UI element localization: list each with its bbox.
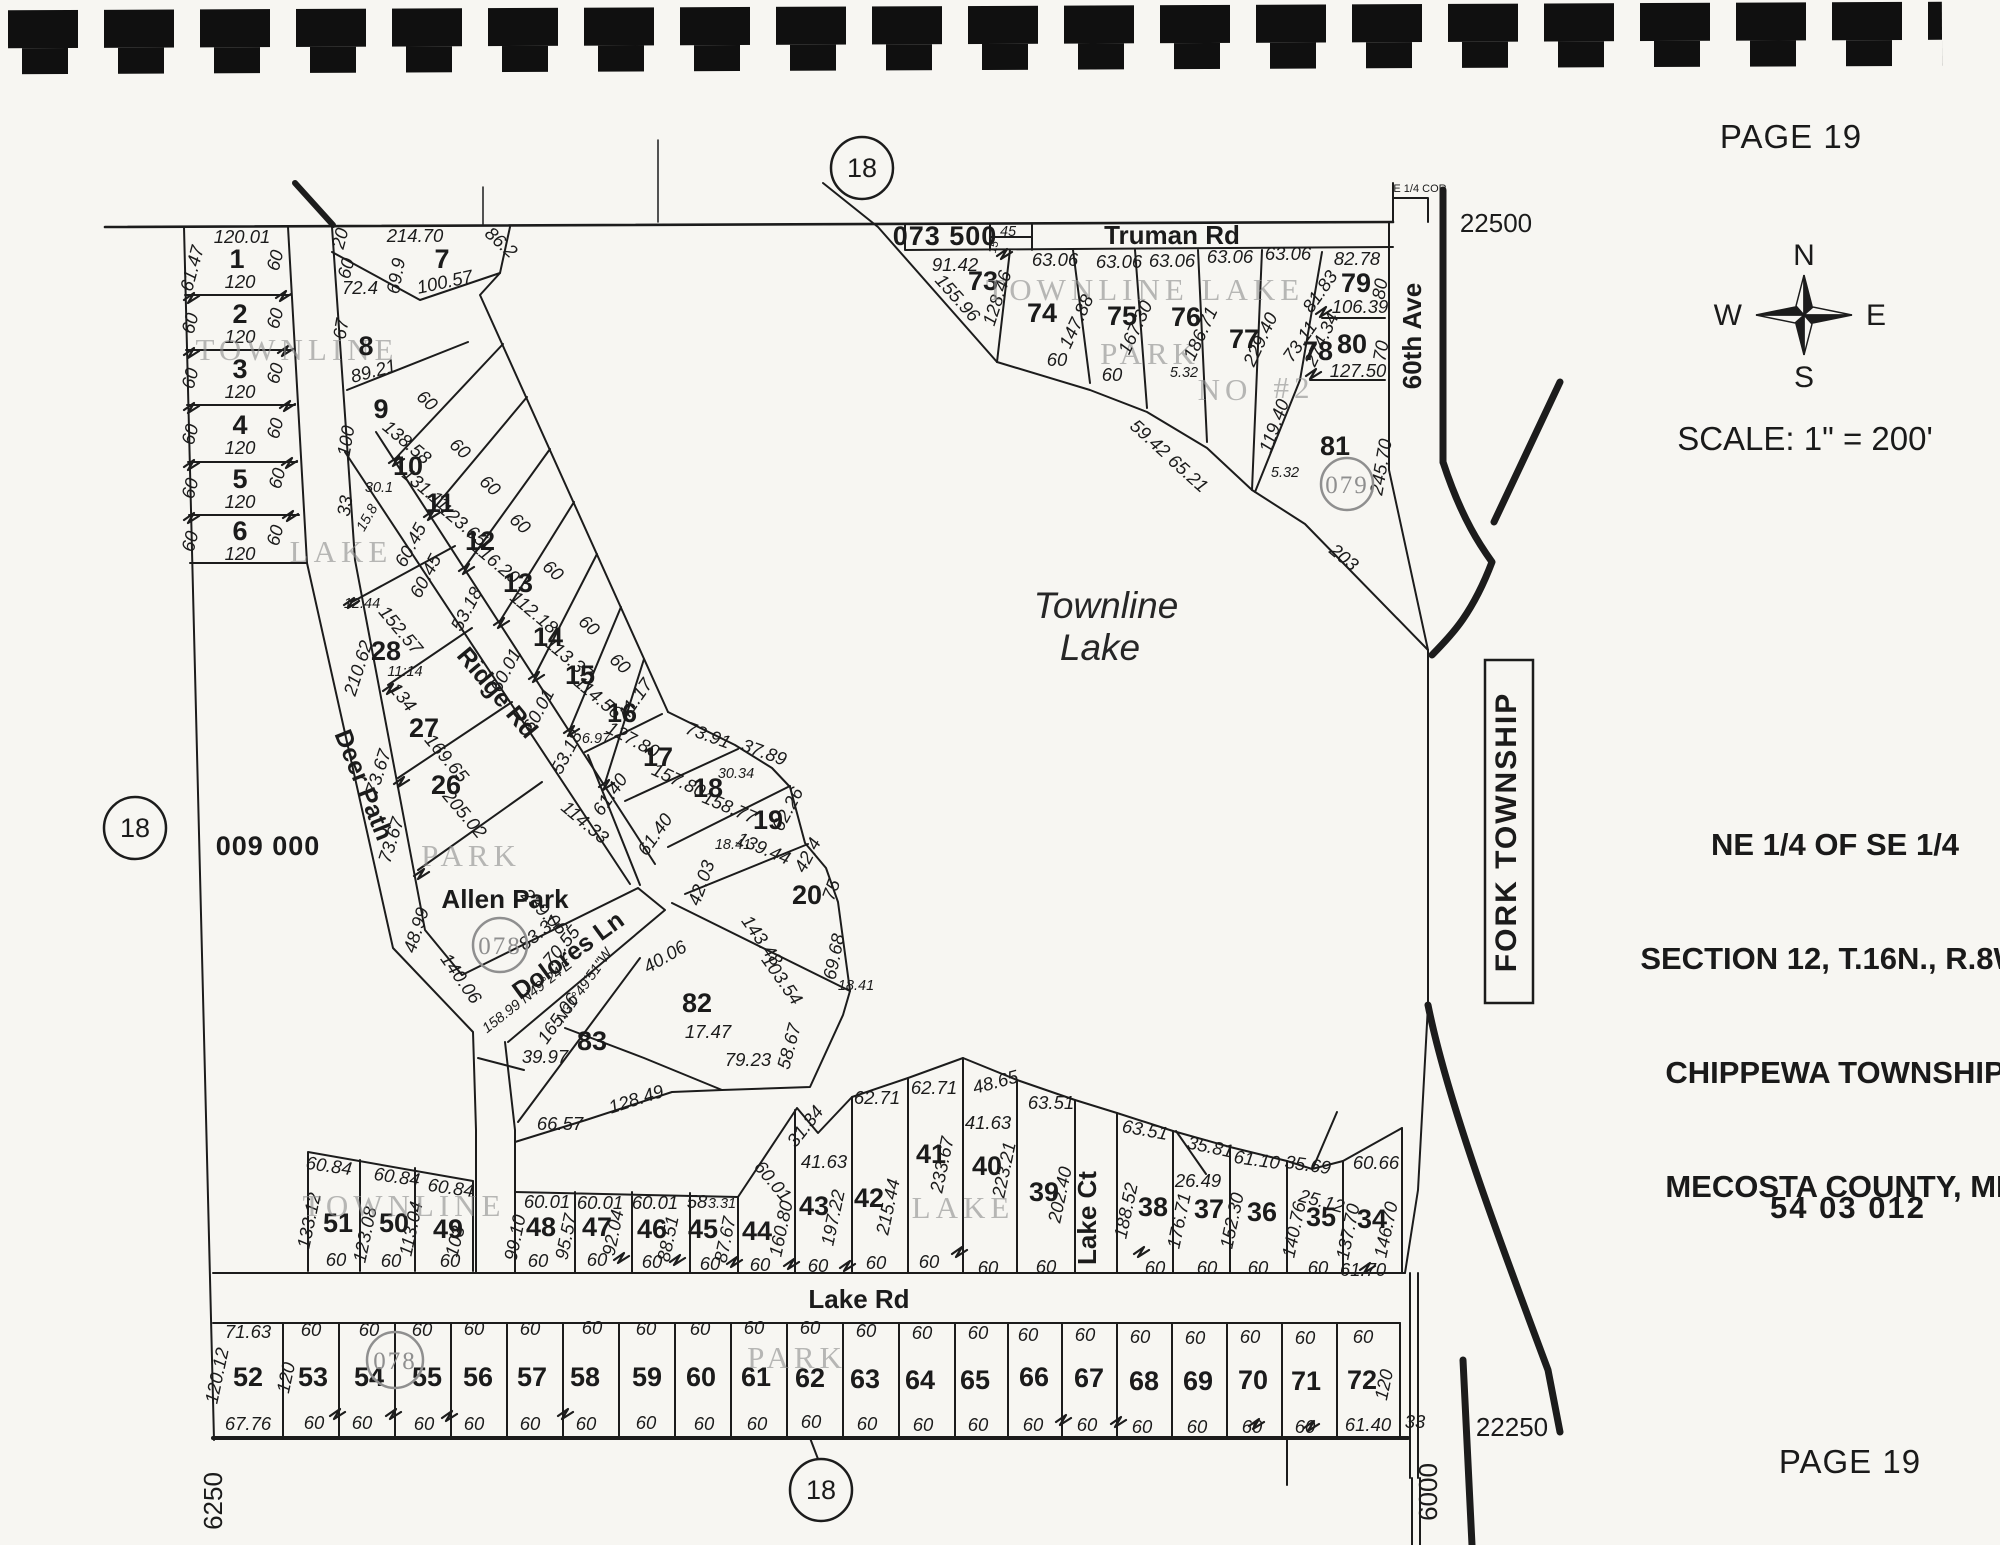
corner-note: 15 — [987, 240, 1002, 255]
dimension-label: 60.84 — [305, 1152, 354, 1179]
dimension-label: 120 — [225, 543, 257, 564]
compass-e: E — [1866, 299, 1886, 332]
dimension-label: 61.40 — [633, 809, 677, 860]
dimension-label: 60 — [575, 610, 605, 640]
dimension-label: 67.76 — [225, 1413, 272, 1434]
circle-number: 18 — [120, 813, 150, 843]
dimension-label: 61.40 — [588, 769, 632, 820]
dimension-label: 60 — [1102, 364, 1123, 385]
dimension-label: 60 — [352, 1412, 373, 1433]
watermark-text: NO — [1198, 372, 1253, 407]
dimension-label: 61.70 — [1340, 1259, 1387, 1280]
lot-number: 80 — [1337, 329, 1367, 359]
dimension-label: 60 — [359, 1319, 380, 1340]
parcel-id-label: 54 03 012 — [1718, 1190, 1978, 1226]
dimension-label: 60 — [1187, 1416, 1208, 1437]
dimension-label: 60 — [1130, 1326, 1151, 1347]
dimension-label: 66.57 — [537, 1113, 584, 1134]
dimension-label: 158.77 — [699, 786, 760, 828]
dimension-label: 30.1 — [365, 480, 393, 496]
dimension-label: 60 — [440, 1250, 461, 1271]
dimension-label: 60 — [690, 1318, 711, 1339]
dimension-label: 60 — [1248, 1257, 1269, 1278]
dimension-label: 18.41 — [715, 837, 751, 853]
legal-line-1: NE 1/4 OF SE 1/4 — [1575, 826, 2000, 864]
lot-number: 68 — [1129, 1366, 1159, 1396]
dimension-label: 60 — [1185, 1327, 1206, 1348]
dimension-label: 35.69 — [1284, 1151, 1333, 1178]
page-number-top: PAGE 19 — [1671, 118, 1911, 156]
legal-line-3: CHIPPEWA TOWNSHIP — [1575, 1054, 2000, 1092]
dimension-label: 60 — [636, 1318, 657, 1339]
dimension-label: 60 — [636, 1412, 657, 1433]
lot-number: 79 — [1341, 268, 1371, 298]
lot-number: 59 — [632, 1362, 662, 1392]
circle-number: 079 — [1325, 472, 1369, 499]
dimension-label: 210.62 — [339, 637, 377, 699]
dimension-label: 73.91 — [683, 717, 734, 753]
dimension-label: 120 — [272, 1360, 299, 1395]
dimension-label: 60 — [177, 475, 203, 501]
grid-coordinate-label: 22500 — [1460, 208, 1532, 238]
circle-number: 18 — [806, 1475, 836, 1505]
dimension-label: 63.06 — [1149, 250, 1196, 271]
lot-number: 6 — [232, 516, 247, 546]
lot-number: 63 — [850, 1364, 880, 1394]
compass-s: S — [1794, 361, 1814, 394]
dimension-label: 120 — [225, 381, 257, 402]
dimension-label: 60 — [1308, 1257, 1329, 1278]
grid-coordinate-label: 6000 — [1413, 1463, 1443, 1521]
watermark-text: LAKE — [912, 1190, 1015, 1225]
dimension-label: 60 — [978, 1257, 999, 1278]
circle-number: 18 — [847, 153, 877, 183]
dimension-label: 60 — [606, 648, 636, 678]
dimension-label: 58.67 — [773, 1021, 805, 1072]
lot-number: 48 — [526, 1212, 556, 1242]
dimension-label: 214.70 — [386, 225, 444, 246]
watermark-text: PARK — [747, 1340, 847, 1375]
lot-number: 53 — [298, 1362, 328, 1392]
dimension-label: 100.57 — [415, 265, 475, 297]
township-box-label: FORK TOWNSHIP — [1490, 692, 1523, 972]
parcel-circle-marker: 078 — [473, 918, 527, 972]
dimension-label: 17.47 — [685, 1021, 732, 1042]
dimension-label: 60 — [968, 1322, 989, 1343]
dimension-label: 53.18 — [546, 726, 587, 777]
lot-number: 67 — [1074, 1363, 1104, 1393]
dimension-label: 69.68 — [819, 931, 849, 981]
dimension-label: 60 — [304, 1412, 325, 1433]
dimension-label: 60 — [1295, 1416, 1316, 1437]
dimension-label: 60 — [1036, 1256, 1057, 1277]
dimension-label: 203 — [1325, 538, 1363, 575]
dimension-label: 60.01 — [632, 1192, 678, 1213]
dimension-label: 60 — [412, 1319, 433, 1340]
section-circle-marker: 18 — [790, 1459, 852, 1521]
dimension-label: 60 — [528, 1250, 549, 1271]
dimension-label: 205.02 — [438, 785, 492, 843]
lot-number: 8 — [358, 331, 373, 361]
dimension-label: 60.84 — [373, 1163, 422, 1190]
dimension-label: 60 — [414, 1413, 435, 1434]
lot-number: 70 — [1238, 1365, 1268, 1395]
dimension-label: 60 — [913, 1414, 934, 1435]
watermark-text: LAKE — [290, 534, 393, 569]
dimension-label: 20 — [327, 225, 353, 252]
dimension-label: 33 — [332, 493, 356, 518]
dimension-label: 100 — [333, 423, 359, 458]
dimension-label: 3.31 — [708, 1196, 736, 1212]
dimension-label: 128.49 — [606, 1080, 666, 1117]
dimension-label: 160.80 — [764, 1198, 796, 1258]
lot-number: 36 — [1247, 1197, 1277, 1227]
circle-number: 078 — [478, 933, 522, 960]
dimension-label: 60.01 — [524, 1191, 570, 1212]
dimension-label: 39.97 — [522, 1046, 569, 1067]
dimension-label: 11:14 — [387, 664, 422, 680]
dimension-label: 60 — [1018, 1324, 1039, 1345]
lot-number: 60 — [686, 1362, 716, 1392]
dimension-label: 120 — [225, 491, 257, 512]
compass-w: W — [1714, 299, 1743, 332]
dimension-label: 119.40 — [1255, 396, 1294, 456]
road-label: Deer Path — [329, 726, 399, 845]
dimension-label: 60 — [464, 1413, 485, 1434]
lot-number: 52 — [233, 1362, 263, 1392]
plat-map-page: { "page": { "title_top": "PAGE 19", "tit… — [0, 0, 2000, 1545]
dimension-label: 45 — [1000, 224, 1017, 240]
lake-name-line1: Townline — [1034, 585, 1179, 626]
dimension-label: 60 — [1295, 1327, 1316, 1348]
dimension-label: 5.32 — [1271, 465, 1299, 481]
circle-number: 078 — [373, 1348, 417, 1375]
dimension-label: 15.8 — [354, 502, 382, 534]
dimension-label: 60 — [1242, 1416, 1263, 1437]
parcel-code: 073 500 — [893, 221, 998, 251]
dimension-label: 60 — [968, 1414, 989, 1435]
lot-number: 69 — [1183, 1366, 1213, 1396]
lot-number: 74 — [1027, 298, 1057, 328]
dimension-label: 35.81 — [1186, 1132, 1236, 1162]
dimension-label: 5.32 — [1170, 365, 1198, 381]
dimension-label: 86.2 — [481, 222, 522, 262]
lot-number: 81 — [1320, 431, 1350, 461]
dimension-label: 60 — [1240, 1326, 1261, 1347]
dimension-label: 30.34 — [718, 766, 754, 782]
scale-label: SCALE: 1" = 200' — [1655, 420, 1955, 458]
dimension-label: 60 — [750, 1254, 771, 1275]
dimension-label: 63.51 — [1121, 1115, 1170, 1144]
dimension-label: 120.12 — [200, 1345, 232, 1405]
dimension-label: 60 — [177, 528, 203, 554]
dimension-label: 60 — [476, 470, 506, 500]
dimension-label: 60 — [177, 421, 203, 447]
dimension-label: 67 — [328, 316, 352, 341]
watermark-text: PARK — [421, 838, 521, 873]
dimension-label: 60 — [1197, 1257, 1218, 1278]
dimension-label: 82.78 — [1334, 248, 1381, 269]
dimension-label: 60 — [520, 1318, 541, 1339]
grid-coordinate-label: 22250 — [1476, 1412, 1548, 1442]
dimension-label: 41.63 — [801, 1151, 848, 1172]
lot-number: 58 — [570, 1362, 600, 1392]
dimension-label: 60 — [262, 522, 288, 548]
dimension-label: 71.63 — [225, 1321, 272, 1342]
dimension-label: 79.23 — [725, 1049, 772, 1070]
dimension-label: 60 — [1023, 1414, 1044, 1435]
compass-rose: N S W E — [1714, 239, 1886, 394]
lot-number: 2 — [232, 299, 247, 329]
dimension-label: 63.51 — [1028, 1092, 1074, 1113]
dimension-label: 120 — [225, 437, 257, 458]
dimension-label: 60.01 — [750, 1156, 796, 1205]
road-label: Ridge Rd — [451, 642, 543, 744]
dimension-label: 42.4 — [790, 834, 825, 876]
dimension-label: 40.06 — [639, 935, 690, 977]
dimension-label: 60 — [262, 247, 288, 273]
dimension-label: 60 — [801, 1411, 822, 1432]
dimension-label: 60 — [744, 1317, 765, 1338]
lot-number: 9 — [373, 394, 388, 424]
dimension-label: 165.06 — [533, 988, 583, 1047]
dimension-label: 127.50 — [1330, 360, 1387, 381]
lot-number: 71 — [1291, 1366, 1321, 1396]
dimension-label: 60 — [539, 555, 569, 585]
dimension-label: 60 — [800, 1317, 821, 1338]
parcel-code: 009 000 — [216, 831, 321, 861]
dimension-label: 63.06 — [1096, 251, 1143, 272]
dimension-label: 48.99 — [399, 905, 433, 956]
dimension-label: 62.71 — [854, 1087, 900, 1108]
dimension-label: 60.66 — [1353, 1152, 1400, 1173]
lot-number: 38 — [1138, 1192, 1168, 1222]
lot-number: 1 — [229, 244, 244, 274]
dimension-label: 26.49 — [1174, 1170, 1221, 1191]
lot-number: 5 — [232, 464, 247, 494]
dimension-label: 60 — [1145, 1257, 1166, 1278]
road-label: 60th Ave — [1397, 283, 1427, 389]
dimension-label: 60 — [576, 1413, 597, 1434]
lake-name-line2: Lake — [1060, 627, 1140, 668]
dimension-label: 61.10 — [1233, 1146, 1282, 1173]
road-label: Lake Rd — [808, 1284, 909, 1314]
dimension-label: 116.20 — [468, 536, 524, 588]
dimension-label: 72.4 — [342, 277, 378, 298]
lot-number: 56 — [463, 1362, 493, 1392]
dimension-label: 60 — [413, 385, 443, 415]
dimension-label: 63.06 — [1265, 243, 1312, 264]
dimension-label: 60 — [520, 1413, 541, 1434]
dimension-label: 60 — [694, 1413, 715, 1434]
dimension-label: 41.63 — [965, 1112, 1012, 1133]
lot-number: 83 — [577, 1026, 607, 1056]
dimension-label: 65.21 — [1164, 450, 1212, 497]
section-circle-marker: 18 — [104, 797, 166, 859]
dimension-label: 48.65 — [970, 1065, 1021, 1097]
dimension-label: 60 — [464, 1318, 485, 1339]
dimension-label: 60 — [262, 415, 288, 441]
dimension-label: 33 — [1405, 1411, 1426, 1432]
dimension-label: 61.47 — [176, 243, 208, 294]
dimension-label: 60 — [808, 1255, 829, 1276]
dimension-label: 58 — [687, 1191, 708, 1212]
parcel-circle-marker: 079 — [1321, 458, 1373, 510]
dimension-label: 61.40 — [1345, 1414, 1392, 1435]
dimension-label: 60 — [177, 365, 203, 391]
road-label: Lake Ct — [1072, 1171, 1102, 1265]
dimension-label: 63.06 — [1032, 249, 1079, 270]
legal-line-2: SECTION 12, T.16N., R.8W, — [1575, 940, 2000, 978]
lot-number: 66 — [1019, 1362, 1049, 1392]
lot-number: 82 — [682, 988, 712, 1018]
dimension-label: 60 — [326, 1249, 347, 1270]
dimension-label: 60 — [1075, 1324, 1096, 1345]
page-number-bottom: PAGE 19 — [1730, 1443, 1970, 1481]
lot-number: 4 — [232, 410, 247, 440]
dimension-label: 60 — [1132, 1416, 1153, 1437]
dimension-label: 60 — [1077, 1414, 1098, 1435]
dimension-label: 60 — [301, 1319, 322, 1340]
dimension-label: 18.41 — [838, 978, 874, 994]
dimension-label: 60 — [747, 1413, 768, 1434]
dimension-label: 62.71 — [911, 1077, 957, 1098]
dimension-label: 60 — [1353, 1326, 1374, 1347]
dimension-label: 106.39 — [1332, 296, 1389, 317]
corner-note: E 1/4 COR — [1393, 183, 1446, 195]
dimension-label: 69.9 — [382, 256, 409, 295]
lot-number: 64 — [905, 1365, 935, 1395]
legal-description: NE 1/4 OF SE 1/4 SECTION 12, T.16N., R.8… — [1575, 750, 2000, 1244]
dimension-label: 59.42 — [1126, 415, 1175, 462]
dimension-label: 245.70 — [1365, 436, 1396, 497]
dimension-label: 60 — [856, 1320, 877, 1341]
dimension-label: 60 — [1047, 349, 1068, 370]
compass-n: N — [1793, 239, 1815, 272]
lot-number: 37 — [1194, 1194, 1224, 1224]
dimension-label: 60 — [262, 305, 288, 331]
dimension-label: 60 — [857, 1413, 878, 1434]
dimension-label: 60 — [866, 1252, 887, 1273]
dimension-label: 31.34 — [782, 1101, 827, 1150]
grid-coordinate-label: 6250 — [198, 1472, 228, 1530]
dimension-label: 60 — [919, 1251, 940, 1272]
watermark-text: TOWNLINE — [303, 1188, 506, 1223]
section-circle-marker: 18 — [831, 137, 893, 199]
dimension-label: 60 — [506, 508, 536, 538]
dimension-label: 120 — [225, 271, 257, 292]
dimension-label: 60 — [446, 433, 476, 463]
lot-number: 57 — [517, 1362, 547, 1392]
road-label: Allen Park — [441, 884, 569, 914]
lot-number: 65 — [960, 1365, 990, 1395]
dimension-label: 63.06 — [1207, 246, 1254, 267]
dimension-label: 60 — [912, 1322, 933, 1343]
dimension-label: 12.44 — [344, 596, 380, 612]
dimension-label: 60 — [582, 1317, 603, 1338]
dimension-label: 53.18 — [446, 583, 487, 634]
